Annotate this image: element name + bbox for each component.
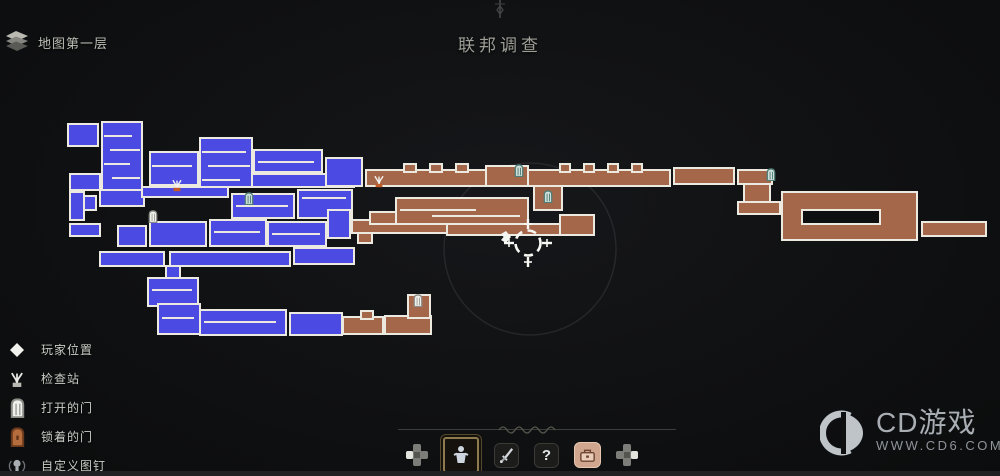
map-room — [404, 164, 416, 172]
legend-item-player: 玩家位置 — [6, 335, 106, 364]
map-room — [70, 174, 100, 190]
map-room — [70, 224, 100, 236]
map-room — [170, 252, 290, 266]
locked-door-icon — [6, 427, 28, 447]
dpad-left-icon — [406, 444, 428, 466]
map-room — [150, 222, 206, 246]
map-room-void — [802, 210, 880, 224]
legend-label: 检查站 — [41, 370, 80, 387]
tab-weapons-button[interactable] — [494, 443, 519, 468]
tab-toolbar: ? — [406, 436, 638, 474]
focus-ring — [444, 163, 616, 335]
map-screen: 地图第一层 联邦调查 玩家位置 检查站 打开的 — [0, 0, 1000, 476]
door-open-icon — [414, 295, 421, 307]
door-open-icon — [149, 211, 156, 223]
door-icon — [515, 165, 522, 177]
map-room — [294, 248, 354, 264]
map-room — [674, 168, 734, 184]
player-icon — [6, 340, 28, 360]
legend-label: 锁着的门 — [41, 428, 93, 445]
door-icon — [544, 191, 551, 203]
map-room — [922, 222, 986, 236]
tab-inventory-button[interactable] — [574, 442, 601, 468]
legend-label: 打开的门 — [41, 399, 93, 416]
open-door-icon — [6, 398, 28, 418]
map-room — [430, 164, 442, 172]
map-room — [584, 164, 594, 172]
map-room — [328, 210, 350, 238]
door-icon — [767, 169, 774, 181]
map-room — [361, 311, 373, 319]
legend-item-checkpoint: 检查站 — [6, 364, 106, 393]
legend-item-open-door: 打开的门 — [6, 393, 106, 422]
map-room — [102, 122, 142, 190]
case-icon — [577, 446, 598, 465]
map-room — [608, 164, 618, 172]
map-room — [290, 313, 342, 335]
map-room — [68, 124, 98, 146]
map-legend: 玩家位置 检查站 打开的门 — [6, 335, 106, 476]
legend-label: 玩家位置 — [41, 341, 93, 358]
sword-icon — [497, 446, 516, 465]
map-room — [358, 233, 372, 243]
checkpoint-icon — [6, 369, 28, 389]
map-room — [632, 164, 642, 172]
map-room — [447, 224, 577, 235]
world-map[interactable] — [0, 0, 1000, 476]
dpad-right-icon — [616, 444, 638, 466]
armor-icon — [451, 444, 471, 466]
question-icon: ? — [542, 448, 551, 463]
map-room — [150, 152, 198, 185]
map-room — [326, 158, 362, 186]
watermark-title: CD游戏 — [876, 408, 1000, 438]
cd-logo-icon — [820, 408, 866, 463]
title-ornament-icon — [491, 0, 509, 25]
legend-item-locked-door: 锁着的门 — [6, 422, 106, 451]
map-room — [528, 170, 670, 186]
door-icon — [245, 193, 252, 205]
map-room — [100, 252, 164, 266]
site-watermark: CD游戏 WWW.CD6.COM — [820, 408, 1000, 463]
map-room — [560, 215, 594, 235]
map-room — [370, 212, 396, 224]
map-room — [70, 192, 84, 220]
tab-character-button[interactable] — [443, 437, 479, 473]
map-room — [142, 187, 228, 197]
map-room — [118, 226, 146, 246]
map-room — [456, 164, 468, 172]
map-room — [738, 202, 780, 214]
map-room — [148, 278, 198, 306]
tab-help-button[interactable]: ? — [534, 443, 559, 468]
map-room — [560, 164, 570, 172]
page-title: 联邦调查 — [0, 31, 1000, 56]
map-room — [100, 190, 144, 206]
bottom-strip — [0, 471, 1000, 476]
watermark-url: WWW.CD6.COM — [876, 438, 1000, 453]
map-room — [84, 196, 96, 210]
